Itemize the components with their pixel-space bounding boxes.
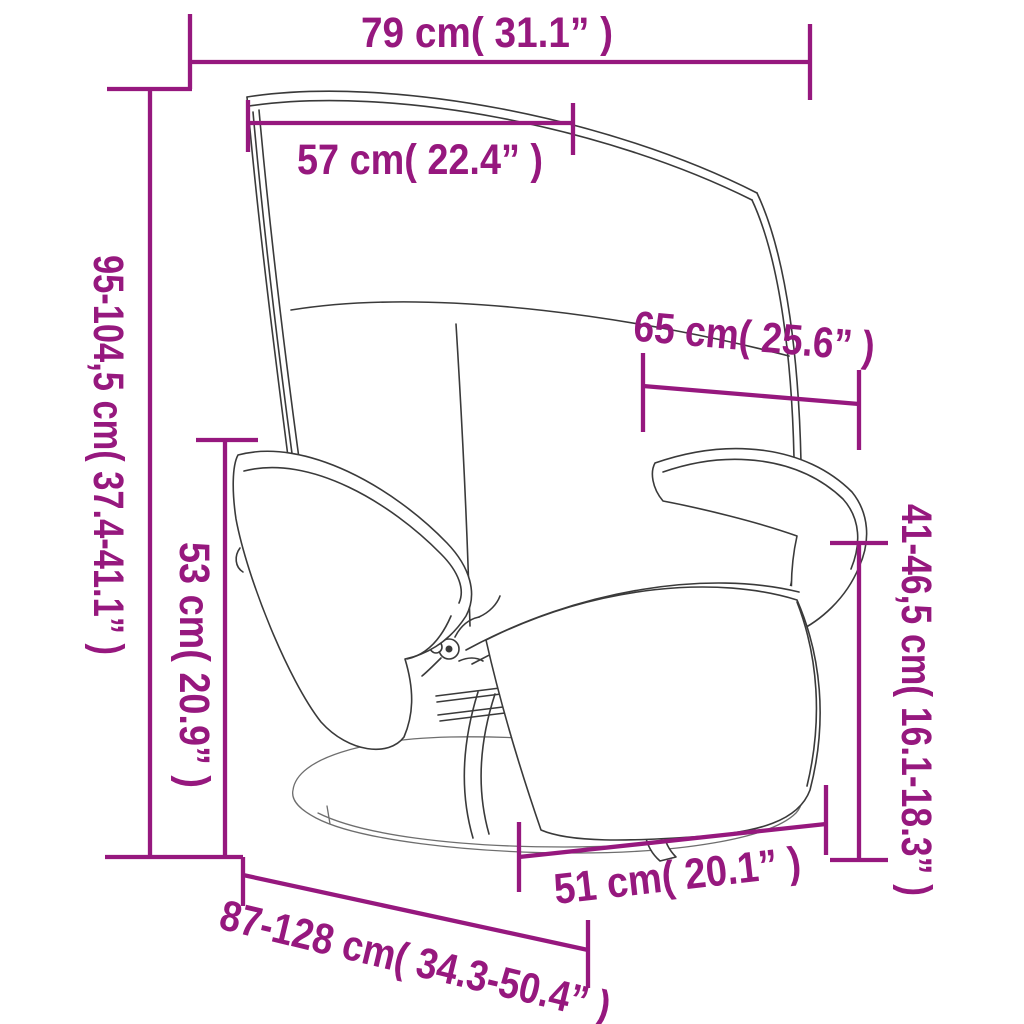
footrest-panel — [486, 587, 820, 840]
label-overall-width: 79 cm( 31.1” ) — [361, 9, 613, 57]
mechanism-lever — [422, 658, 441, 676]
label-rear-height: 41-46,5 cm( 16.1-18.3” ) — [892, 504, 940, 896]
label-headrest-width: 57 cm( 22.4” ) — [297, 136, 543, 184]
label-overall-height: 95-104,5 cm( 37.4-41.1” ) — [84, 255, 132, 655]
left-armrest-end-cap — [236, 548, 243, 572]
chair-line-art — [233, 91, 866, 861]
mechanism-knob-center — [446, 646, 453, 653]
label-armrest-height: 53 cm( 20.9” ) — [170, 542, 218, 788]
frame-slats — [436, 688, 505, 721]
recliner-dimension-diagram: 79 cm( 31.1” ) 57 cm( 22.4” ) 95-104,5 c… — [0, 0, 1024, 1024]
